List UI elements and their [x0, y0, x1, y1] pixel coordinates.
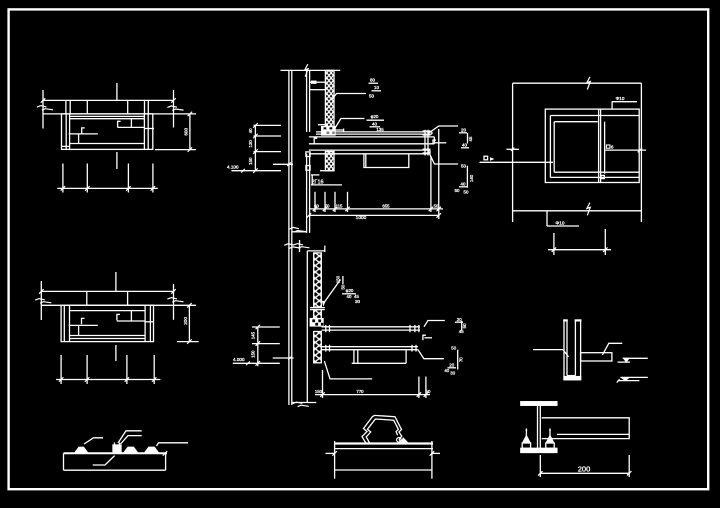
- svg-text:40: 40: [248, 128, 253, 133]
- svg-text:150: 150: [248, 157, 253, 165]
- svg-text:770: 770: [356, 389, 364, 394]
- svg-text:20: 20: [461, 128, 466, 133]
- svg-text:200: 200: [578, 465, 591, 474]
- svg-text:50: 50: [426, 389, 431, 394]
- svg-text:40: 40: [444, 368, 449, 373]
- svg-text:150: 150: [315, 389, 323, 394]
- svg-text:10: 10: [374, 85, 379, 90]
- svg-text:60: 60: [314, 203, 319, 208]
- svg-text:50: 50: [369, 94, 374, 99]
- svg-text:45: 45: [459, 329, 464, 334]
- svg-text:Φ10: Φ10: [616, 96, 625, 101]
- svg-text:50: 50: [461, 164, 466, 169]
- svg-text:50: 50: [462, 323, 467, 328]
- svg-text:φ20: φ20: [346, 288, 354, 293]
- svg-text:Φ10: Φ10: [555, 221, 564, 227]
- svg-text:140: 140: [469, 174, 474, 182]
- svg-text:40: 40: [462, 143, 467, 148]
- svg-text:145: 145: [251, 331, 256, 339]
- svg-text:20: 20: [449, 363, 454, 368]
- svg-text:45: 45: [468, 136, 473, 141]
- svg-text:130: 130: [248, 140, 253, 148]
- svg-text:115: 115: [336, 203, 343, 208]
- svg-text:φ20: φ20: [371, 114, 379, 119]
- svg-text:70: 70: [325, 203, 330, 208]
- svg-text:655: 655: [382, 203, 390, 208]
- svg-text:60: 60: [455, 188, 460, 193]
- svg-text:70: 70: [459, 357, 464, 362]
- svg-text:1000: 1000: [356, 215, 367, 221]
- svg-text:600: 600: [183, 128, 188, 136]
- svg-text:4.100: 4.100: [227, 164, 239, 169]
- svg-text:50: 50: [464, 190, 469, 195]
- svg-text:150: 150: [336, 275, 341, 283]
- svg-text:40: 40: [347, 294, 352, 299]
- svg-text:150: 150: [251, 350, 256, 358]
- svg-text:40: 40: [372, 122, 377, 127]
- svg-text:30: 30: [355, 299, 360, 304]
- svg-text:80: 80: [370, 78, 375, 83]
- svg-text:4.000: 4.000: [233, 357, 245, 362]
- svg-text:200: 200: [183, 317, 188, 325]
- svg-text:50: 50: [434, 203, 439, 208]
- svg-text:40: 40: [461, 182, 466, 187]
- svg-text:30: 30: [450, 371, 455, 376]
- svg-text:50: 50: [451, 346, 456, 351]
